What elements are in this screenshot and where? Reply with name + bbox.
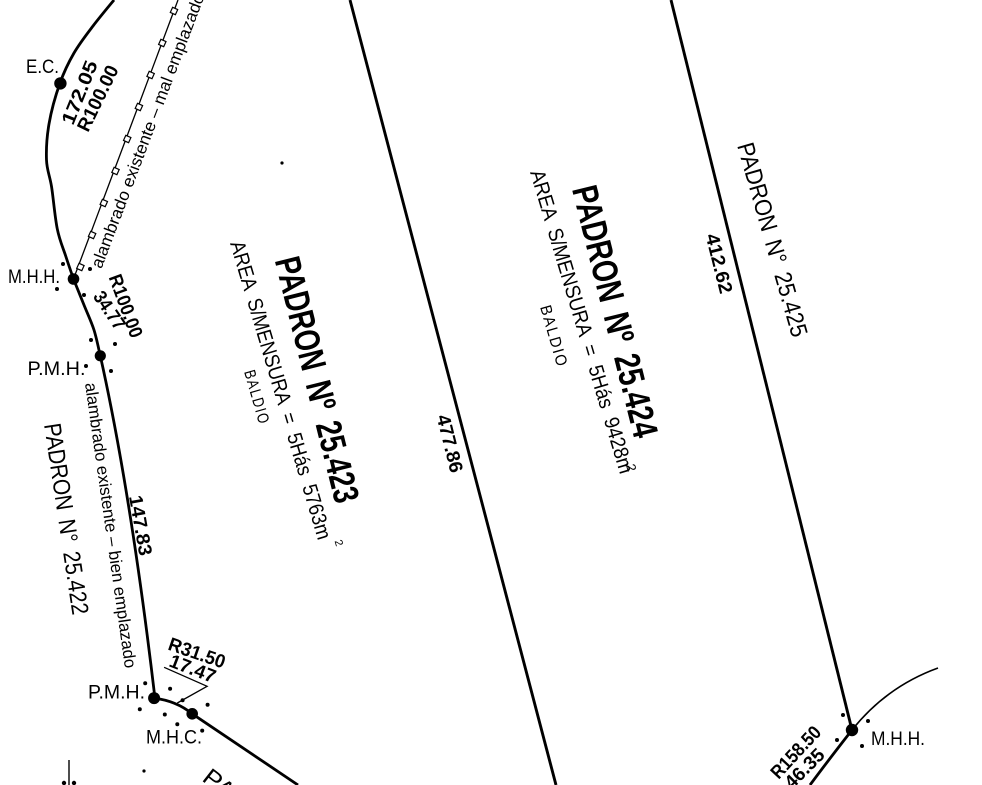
svg-text:M.H.C.: M.H.C. [146, 728, 202, 749]
svg-text:E.C.: E.C. [26, 57, 59, 78]
svg-text:M.H.H.: M.H.H. [871, 729, 925, 750]
svg-text:P.M.H.: P.M.H. [28, 359, 86, 380]
svg-text:M.H.H.: M.H.H. [8, 267, 60, 288]
svg-text:P.M.H.: P.M.H. [88, 683, 145, 704]
